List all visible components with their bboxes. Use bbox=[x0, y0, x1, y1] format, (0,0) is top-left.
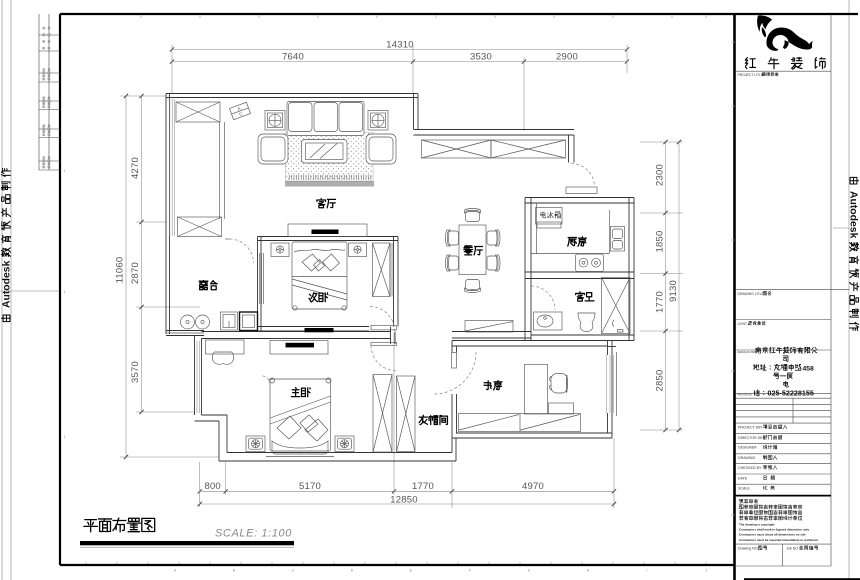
svg-text:458: 458 bbox=[803, 365, 815, 372]
svg-text:2900: 2900 bbox=[556, 52, 578, 63]
svg-text:Autodesk: Autodesk bbox=[2, 260, 13, 308]
svg-text:025-52228155: 025-52228155 bbox=[768, 389, 814, 398]
svg-text:4970: 4970 bbox=[522, 481, 544, 492]
svg-text:DESIGNER: DESIGNER bbox=[738, 446, 757, 450]
svg-text:5170: 5170 bbox=[299, 481, 321, 492]
svg-text:F: F bbox=[469, 569, 471, 573]
svg-text:1850: 1850 bbox=[655, 231, 666, 253]
svg-text:11060: 11060 bbox=[115, 257, 126, 284]
svg-text:CHECKED BY: CHECKED BY bbox=[738, 466, 762, 470]
svg-text:2300: 2300 bbox=[655, 164, 666, 186]
svg-text:DRAWING: DRAWING bbox=[738, 456, 755, 460]
svg-text:DIRECTOR DEV: DIRECTOR DEV bbox=[738, 436, 766, 440]
svg-text:C: C bbox=[239, 111, 244, 117]
svg-text:DESIGN FIRM: DESIGN FIRM bbox=[738, 350, 758, 354]
svg-text:REVISION: REVISION bbox=[738, 392, 752, 396]
svg-text:The drawing is copyright: The drawing is copyright bbox=[739, 522, 775, 526]
svg-text:12850: 12850 bbox=[390, 494, 417, 505]
svg-text:Drawing NO: Drawing NO bbox=[738, 547, 758, 551]
svg-text:A: A bbox=[174, 569, 177, 573]
svg-text:1: 1 bbox=[64, 435, 66, 439]
svg-text:3530: 3530 bbox=[470, 52, 492, 63]
svg-text:E: E bbox=[410, 569, 412, 573]
svg-text:PROJECT LITLE: PROJECT LITLE bbox=[738, 73, 764, 77]
svg-text:Contractors must be reported i: Contractors must be reported immediately… bbox=[739, 538, 819, 542]
svg-text:D: D bbox=[351, 569, 354, 573]
svg-text:Autodesk: Autodesk bbox=[848, 191, 859, 239]
svg-text:1: 1 bbox=[64, 169, 66, 173]
svg-text:PROJECT DIR: PROJECT DIR bbox=[738, 425, 762, 429]
svg-text:14310: 14310 bbox=[386, 39, 413, 50]
svg-text:C: C bbox=[292, 569, 295, 573]
svg-text:800: 800 bbox=[204, 481, 220, 492]
svg-text:DATE: DATE bbox=[738, 476, 748, 480]
svg-text:DRAWING LITLE: DRAWING LITLE bbox=[738, 292, 765, 296]
svg-text:I: I bbox=[647, 569, 648, 573]
svg-text:1: 1 bbox=[64, 290, 66, 294]
svg-text:B: B bbox=[233, 569, 235, 573]
svg-text:1770: 1770 bbox=[655, 291, 666, 313]
svg-text:J: J bbox=[705, 569, 707, 573]
svg-text:7640: 7640 bbox=[282, 52, 304, 63]
svg-text:LIENT: LIENT bbox=[738, 322, 748, 326]
svg-text:Job NO: Job NO bbox=[786, 547, 798, 551]
svg-text:SCALE: 1:100: SCALE: 1:100 bbox=[215, 528, 292, 540]
svg-text:3570: 3570 bbox=[130, 361, 141, 383]
svg-text:Contractors must check all dim: Contractors must check all dimensions on… bbox=[739, 533, 806, 537]
svg-text:G: G bbox=[528, 569, 531, 573]
svg-text:2850: 2850 bbox=[655, 370, 666, 392]
svg-text:H: H bbox=[587, 569, 590, 573]
svg-text:9130: 9130 bbox=[668, 280, 679, 302]
svg-text:SCALE: SCALE bbox=[738, 487, 750, 491]
svg-text:1770: 1770 bbox=[412, 481, 434, 492]
svg-text:2870: 2870 bbox=[130, 262, 141, 284]
svg-text:Contractors shall work to figu: Contractors shall work to figured dimens… bbox=[739, 528, 809, 532]
svg-text:4270: 4270 bbox=[130, 157, 141, 179]
